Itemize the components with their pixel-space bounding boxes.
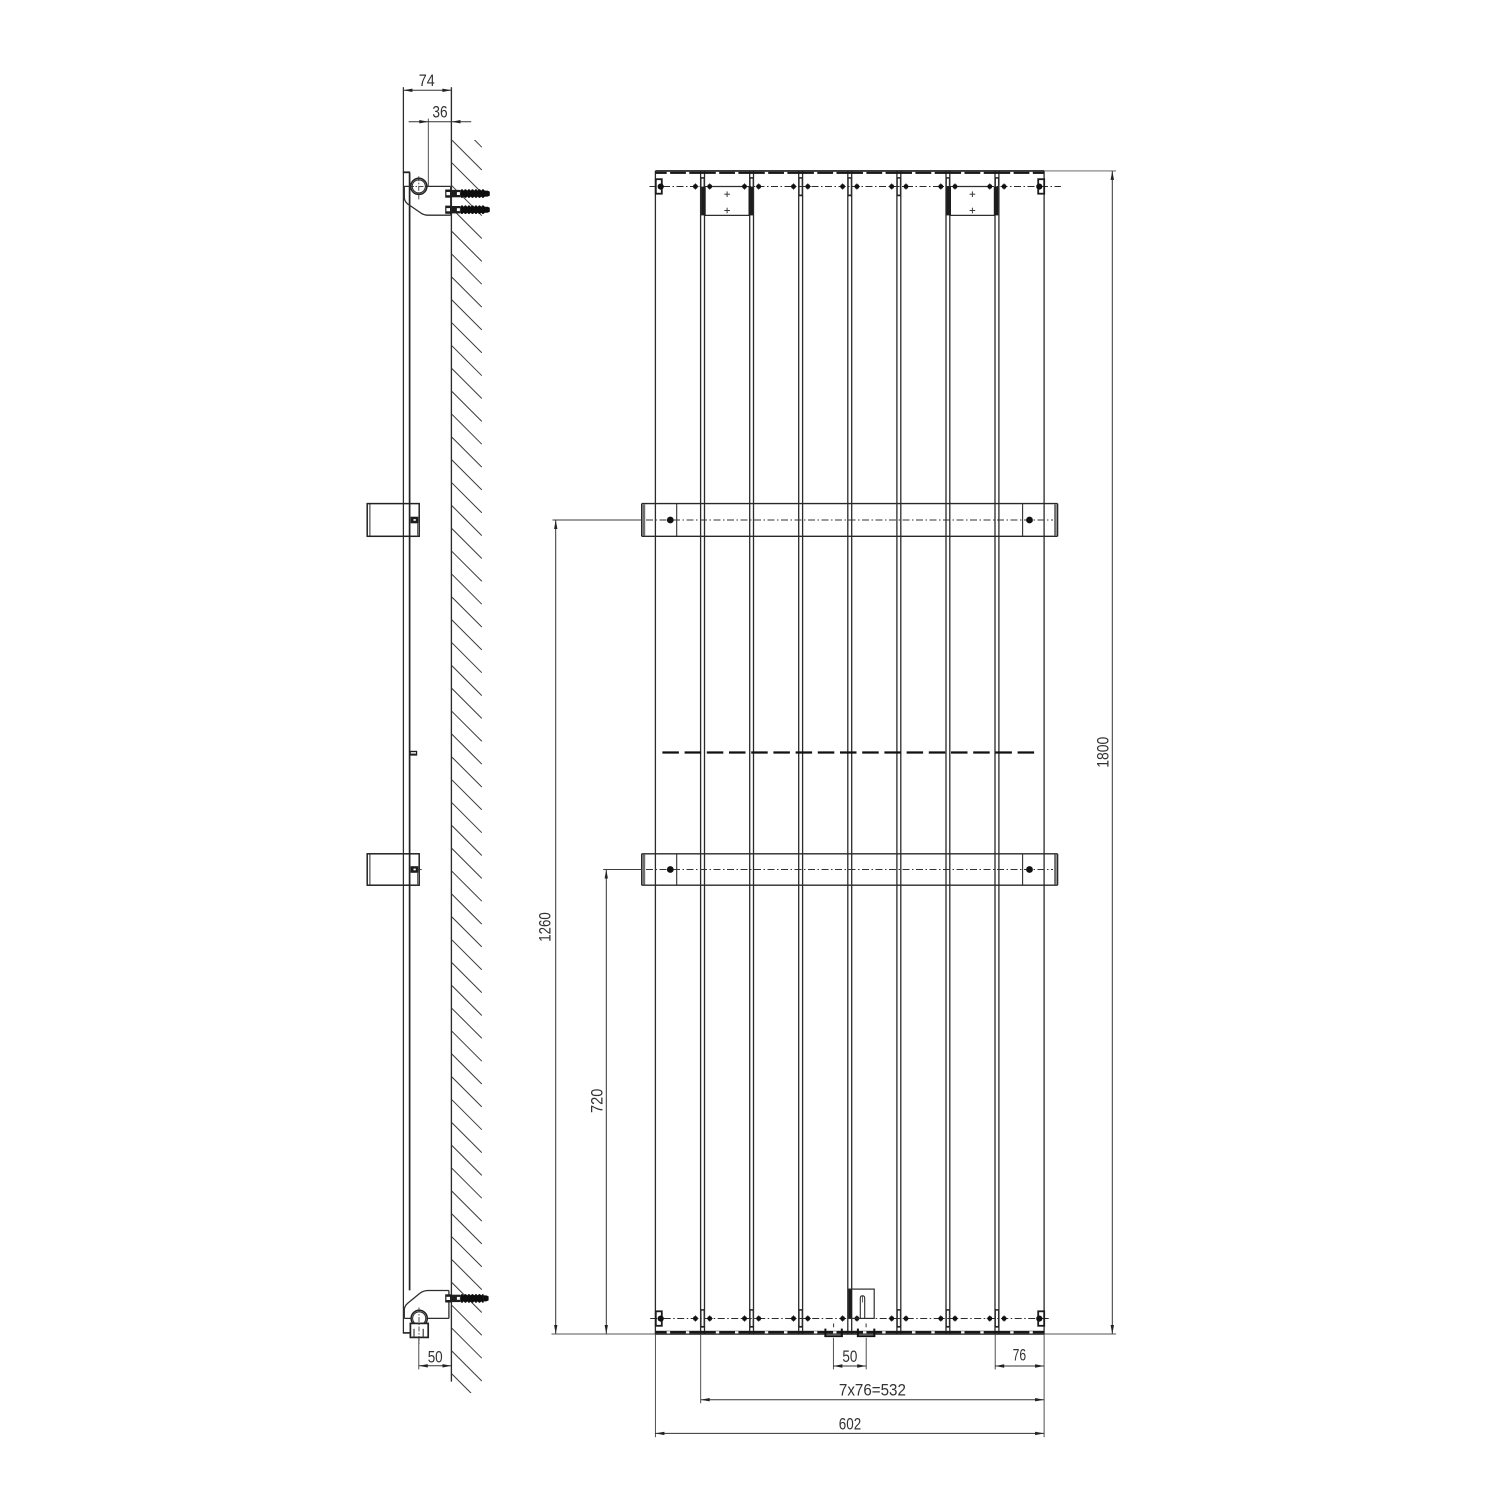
svg-text:50: 50	[428, 1348, 443, 1367]
svg-text:50: 50	[842, 1347, 857, 1366]
svg-text:36: 36	[432, 102, 447, 121]
svg-text:7x76=532: 7x76=532	[839, 1381, 906, 1400]
svg-text:1800: 1800	[1094, 737, 1113, 768]
svg-text:1260: 1260	[536, 912, 555, 941]
svg-text:720: 720	[587, 1089, 606, 1113]
svg-text:76: 76	[1013, 1346, 1027, 1365]
svg-text:74: 74	[419, 71, 435, 90]
svg-text:602: 602	[839, 1415, 861, 1434]
